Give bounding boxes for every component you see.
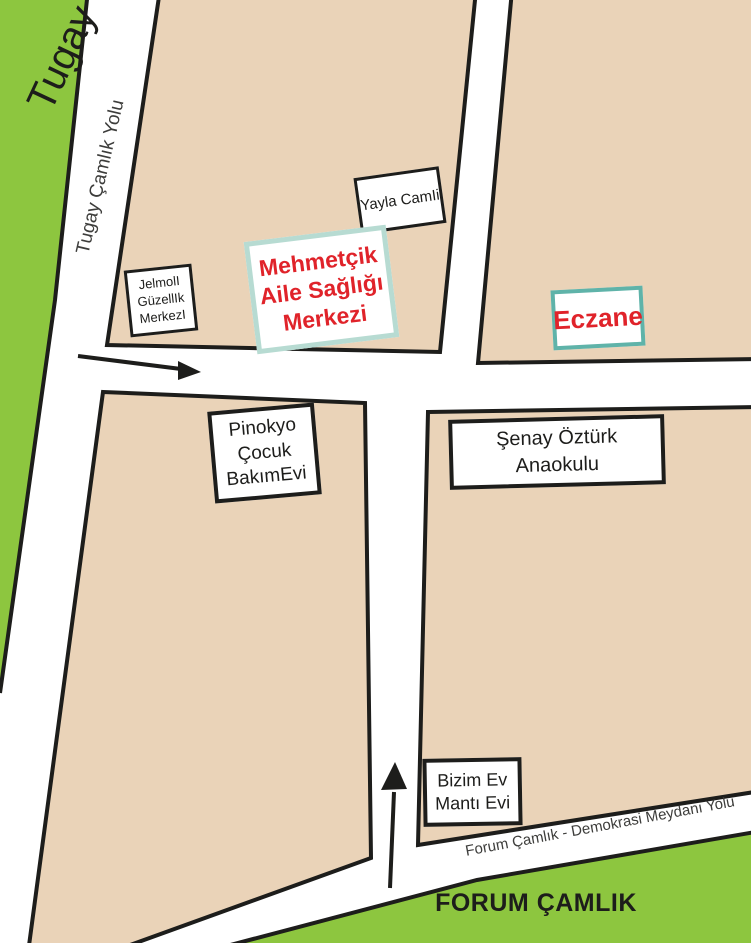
poi-label-line: Mantı Evi (435, 791, 510, 816)
poi-label-line: Bizim Ev (437, 768, 507, 793)
poi-senay-ozturk-anaokulu: Şenay Öztürk Anaokulu (448, 414, 666, 490)
arrow-east-icon (78, 356, 201, 380)
poi-yayla-camii: Yayla CamIi (353, 166, 446, 234)
area-label-forum-camlik-text: FORUM ÇAMLIK (435, 889, 637, 918)
poi-label-line: Anaokulu (515, 451, 599, 480)
poi-label-line: Yayla CamIi (359, 187, 440, 215)
poi-label-line: Eczane (552, 300, 643, 336)
poi-pinokyo-cocuk-bakimevi: Pinokyo Çocuk BakımEvi (207, 403, 322, 504)
poi-bizim-ev-manti-evi: Bizim Ev Mantı Evi (422, 757, 522, 827)
poi-label-line: MerkezI (139, 306, 187, 328)
poi-label-line: Şenay Öztürk (496, 423, 618, 453)
poi-jelmoli-guzellik-merkezi: JelmolI GüzellIk MerkezI (124, 264, 199, 338)
arrow-north-icon (381, 762, 407, 888)
poi-eczane: Eczane (550, 286, 645, 351)
map: Tugay Tugay Çamlık Yolu Forum Çamlık - D… (0, 0, 751, 943)
area-label-forum-camlik: FORUM ÇAMLIK (426, 889, 646, 918)
poi-mehmetcik-aile-sagligi-merkezi: Mehmetçik Aile Sağlığı Merkezi (244, 225, 400, 355)
